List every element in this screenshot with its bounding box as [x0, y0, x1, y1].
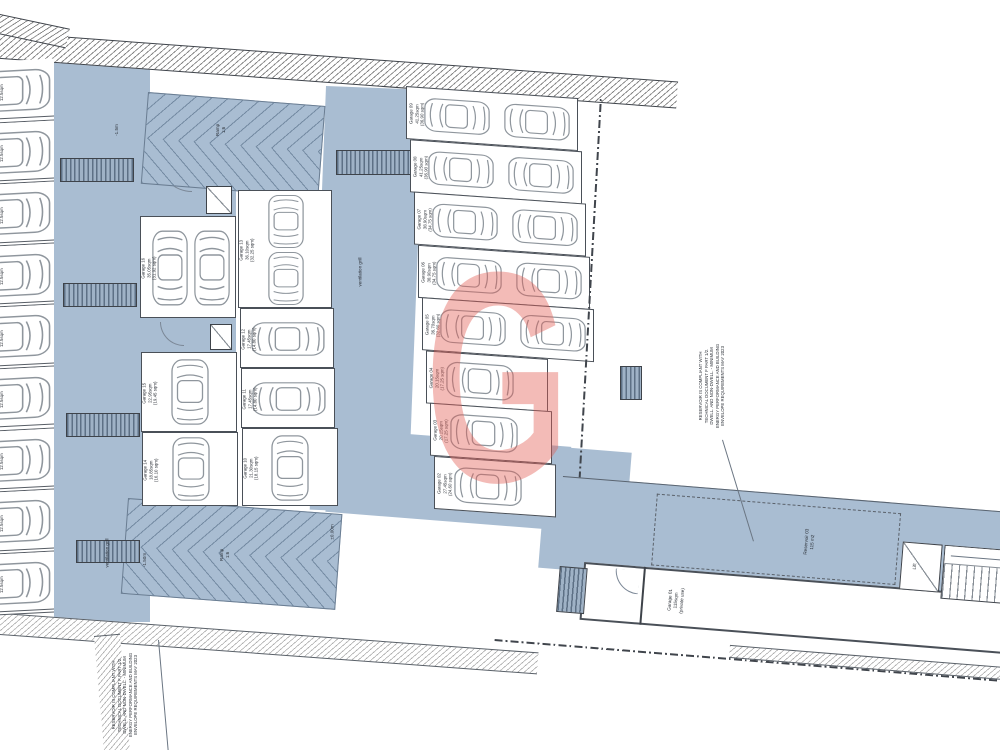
parking-stall: Garage 19 12.5sqm — [0, 182, 54, 249]
wall-line-bottom-left — [158, 640, 169, 750]
car-icon — [0, 251, 52, 300]
parking-stall: Garage 23 12.5sqm — [0, 428, 54, 495]
garage-label: Garage 11 17.45sqm (14.80 sqm) — [244, 375, 256, 423]
garage-unit: Garage 10 21.30sqm (18.15 sqm) — [242, 428, 338, 506]
garage-label: Garage 17 12.5sqm — [0, 69, 4, 116]
corridor-group: Reservoir 03 115 m2 Garage 01 115sqm (pr… — [548, 476, 1000, 710]
parking-stall: Garage 17 12.5sqm — [0, 58, 54, 125]
ramp-bottom — [121, 498, 343, 610]
car-icon — [171, 436, 211, 502]
car-icon — [251, 381, 327, 417]
garage-unit: Garage 15 22.95sqm (19.45 sqm) — [141, 352, 237, 432]
ventilation-grill — [336, 150, 414, 175]
garage-label: Garage 15 22.95sqm (19.45 sqm) — [144, 369, 156, 417]
car-icon — [0, 128, 52, 177]
car-icon — [0, 313, 52, 362]
ventilation-grill — [556, 566, 588, 614]
stair-landing — [944, 546, 1000, 576]
car-icon — [267, 251, 305, 306]
car-icon — [427, 149, 495, 190]
car-icon — [193, 229, 231, 307]
car-icon — [507, 155, 575, 196]
car-icon — [503, 102, 571, 143]
garage-label: Garage 22 12.5sqm — [0, 377, 4, 424]
garage-label: Garage 20 12.5sqm — [0, 254, 4, 301]
garage-label: Garage 24 12.5sqm — [0, 500, 4, 547]
floor-plan-canvas: Garage 17 12.5sqmGarage 18 12.5sqmGarage… — [0, 0, 1000, 750]
parking-stall: Garage 25 12.5sqm — [0, 551, 54, 618]
shaft-box — [206, 186, 232, 214]
garage-label: Garage 19 12.5sqm — [0, 192, 4, 239]
garage-label: Garage 12 17.45sqm (14.80 sqm) — [243, 315, 255, 363]
lift-box — [899, 541, 943, 592]
car-icon — [0, 559, 52, 608]
ventilation-grill — [620, 366, 642, 400]
garage-label: Garage 14 18.85sqm (16.10 sqm) — [145, 446, 157, 494]
garage-unit: Garage 13 36.10sqm (32.25 sqm) — [238, 190, 332, 308]
car-icon — [0, 436, 52, 485]
ventilation-grill — [76, 540, 140, 563]
car-icon — [0, 67, 52, 116]
ventilation-grill — [60, 158, 134, 182]
garage-unit: Garage 11 17.45sqm (14.80 sqm) — [241, 368, 335, 428]
garage-label: Garage 23 12.5sqm — [0, 439, 4, 486]
garage-unit: Garage 16 35.05sqm (31.92 sqm) — [140, 216, 236, 318]
car-icon — [0, 190, 52, 239]
ground-band-bottom-right — [729, 645, 1000, 685]
garage-label: Garage 10 21.30sqm (18.15 sqm) — [245, 444, 257, 492]
logo-watermark-g: G — [425, 250, 570, 505]
car-icon — [0, 498, 52, 547]
garage-label: Garage 09 41.25sqm (36.90 sqm) — [410, 92, 423, 136]
car-icon — [267, 194, 305, 249]
car-icon — [250, 321, 326, 357]
ramp-top — [141, 92, 326, 198]
ventilation-grill — [66, 413, 140, 437]
parking-stall: Garage 22 12.5sqm — [0, 366, 54, 433]
garage-label: Garage 18 12.5sqm — [0, 131, 4, 178]
car-icon — [0, 375, 52, 424]
garage-unit: Garage 12 17.45sqm (14.80 sqm) — [240, 308, 334, 368]
car-icon — [270, 434, 310, 502]
ground-band-bottom — [0, 612, 539, 674]
garage-label: Garage 08 41.25sqm (36.90 sqm) — [414, 145, 427, 189]
parking-stall: Garage 20 12.5sqm — [0, 243, 54, 310]
shaft-box — [210, 324, 232, 350]
garage-label: Garage 16 35.05sqm (31.92 sqm) — [143, 244, 155, 292]
garage-label: Garage 13 36.10sqm (32.25 sqm) — [241, 226, 253, 274]
wall-bottom-left — [94, 634, 130, 750]
parking-stall: Garage 21 12.5sqm — [0, 305, 54, 372]
car-icon — [423, 96, 491, 137]
garage-label: Garage 25 12.5sqm — [0, 562, 4, 609]
compliance-note-right: RESERVOIR IS COMPLIANT WITH TECHNICAL DO… — [698, 330, 726, 442]
left-stall-column: Garage 17 12.5sqmGarage 18 12.5sqmGarage… — [0, 58, 54, 624]
car-icon — [170, 358, 210, 426]
parking-stall: Garage 18 12.5sqm — [0, 120, 54, 187]
garage-label: Garage 21 12.5sqm — [0, 315, 4, 362]
garage-unit: Garage 14 18.85sqm (16.10 sqm) — [142, 432, 238, 506]
ventilation-grill — [63, 283, 137, 307]
parking-stall: Garage 24 12.5sqm — [0, 490, 54, 557]
stall-divider — [0, 609, 54, 616]
